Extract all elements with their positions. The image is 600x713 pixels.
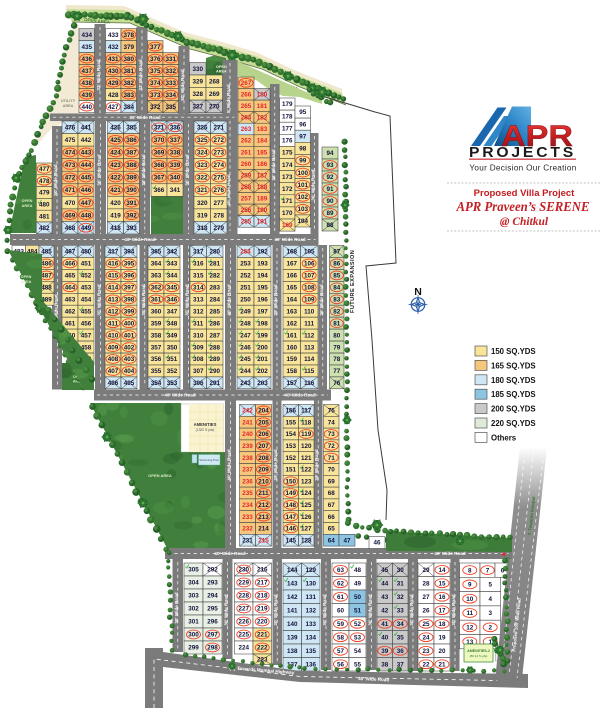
svg-text:478: 478	[39, 178, 50, 185]
svg-text:39' Wide Road: 39' Wide Road	[314, 449, 319, 480]
svg-text:412: 412	[108, 308, 119, 315]
svg-text:193: 193	[257, 261, 268, 268]
svg-text:202: 202	[257, 368, 268, 375]
svg-text:161: 161	[287, 332, 298, 339]
svg-text:384: 384	[124, 104, 135, 111]
svg-text:253: 253	[240, 261, 251, 268]
svg-text:352: 352	[167, 368, 178, 375]
svg-text:242: 242	[242, 408, 253, 415]
svg-text:77: 77	[333, 368, 341, 375]
svg-text:112: 112	[304, 332, 315, 339]
svg-text:424: 424	[110, 150, 121, 157]
svg-text:71: 71	[328, 455, 336, 462]
svg-text:99: 99	[299, 158, 307, 165]
svg-text:468: 468	[65, 225, 76, 232]
svg-text:336: 336	[170, 125, 181, 132]
svg-text:430: 430	[108, 68, 119, 75]
svg-text:210: 210	[258, 478, 269, 485]
svg-text:163: 163	[287, 308, 298, 315]
svg-text:189: 189	[257, 196, 268, 203]
svg-text:132: 132	[306, 608, 317, 615]
svg-text:443: 443	[81, 150, 92, 157]
svg-text:404: 404	[124, 368, 135, 375]
svg-text:25: 25	[422, 621, 430, 628]
svg-text:87: 87	[333, 249, 341, 256]
svg-text:371: 371	[154, 125, 165, 132]
svg-text:131: 131	[306, 594, 317, 601]
svg-text:366: 366	[154, 187, 165, 194]
svg-text:302: 302	[188, 606, 199, 613]
svg-text:369: 369	[154, 150, 165, 157]
svg-text:11: 11	[466, 610, 473, 617]
svg-text:239: 239	[242, 443, 253, 450]
svg-text:150: 150	[286, 478, 297, 485]
svg-text:39' Wide Road: 39' Wide Road	[273, 449, 278, 480]
svg-text:445: 445	[81, 175, 92, 182]
svg-text:194: 194	[257, 273, 268, 280]
svg-text:FUTURE EXPANSION: FUTURE EXPANSION	[350, 250, 356, 313]
svg-text:220: 220	[257, 619, 268, 626]
svg-text:36' Wide Road: 36' Wide Road	[271, 149, 276, 180]
svg-text:385: 385	[126, 125, 137, 132]
svg-text:217: 217	[257, 580, 268, 587]
svg-text:291: 291	[210, 380, 221, 387]
svg-text:356: 356	[151, 356, 162, 363]
svg-text:26: 26	[422, 608, 430, 615]
svg-text:81: 81	[333, 320, 341, 327]
svg-text:157: 157	[287, 380, 298, 387]
svg-text:30: 30	[397, 567, 405, 574]
svg-text:389: 389	[126, 175, 137, 182]
svg-text:429: 429	[108, 80, 119, 87]
svg-text:427: 427	[108, 104, 119, 111]
svg-text:393: 393	[126, 225, 137, 232]
svg-text:316: 316	[193, 261, 204, 268]
svg-text:143: 143	[287, 581, 298, 588]
svg-text:262: 262	[241, 138, 252, 145]
svg-text:44: 44	[381, 581, 389, 588]
svg-text:172: 172	[282, 186, 293, 193]
svg-text:27: 27	[422, 594, 430, 601]
svg-text:185 SQ.YDS: 185 SQ.YDS	[491, 390, 536, 399]
svg-text:36' Wide Road: 36' Wide Road	[319, 284, 324, 315]
svg-text:192: 192	[257, 249, 268, 256]
svg-text:399: 399	[124, 308, 135, 315]
svg-text:341: 341	[170, 187, 181, 194]
svg-text:195: 195	[257, 285, 268, 292]
svg-text:141: 141	[287, 608, 298, 615]
svg-text:413: 413	[108, 297, 119, 304]
svg-text:167: 167	[287, 261, 298, 268]
svg-text:285: 285	[210, 308, 221, 315]
svg-text:381: 381	[124, 68, 135, 75]
svg-text:30' Wide Road: 30' Wide Road	[409, 594, 414, 625]
svg-text:280: 280	[210, 249, 221, 256]
svg-text:255: 255	[241, 219, 252, 226]
svg-text:154: 154	[286, 431, 297, 438]
svg-text:380: 380	[124, 56, 135, 63]
svg-text:264: 264	[241, 115, 252, 122]
svg-text:321: 321	[197, 187, 208, 194]
svg-text:171: 171	[282, 198, 293, 205]
svg-text:(80.14 S.yds): (80.14 S.yds)	[470, 654, 488, 658]
svg-text:454: 454	[81, 297, 92, 304]
svg-text:477: 477	[39, 166, 50, 173]
svg-text:165: 165	[287, 285, 298, 292]
svg-text:204: 204	[258, 408, 269, 415]
svg-text:49: 49	[354, 581, 362, 588]
svg-text:40' Wide Road: 40' Wide Road	[227, 449, 232, 480]
svg-text:166: 166	[287, 273, 298, 280]
svg-text:444: 444	[81, 162, 92, 169]
svg-text:473: 473	[65, 162, 76, 169]
svg-text:16: 16	[438, 594, 446, 601]
svg-text:294: 294	[207, 593, 218, 600]
svg-text:50: 50	[354, 594, 362, 601]
svg-text:437: 437	[82, 68, 93, 75]
svg-text:24: 24	[422, 635, 430, 642]
svg-text:448: 448	[81, 212, 92, 219]
svg-text:309: 309	[193, 344, 204, 351]
svg-text:88: 88	[326, 222, 334, 229]
svg-text:296: 296	[207, 619, 218, 626]
svg-text:175: 175	[282, 150, 293, 157]
svg-text:206: 206	[258, 431, 269, 438]
svg-text:121: 121	[301, 455, 312, 462]
svg-text:240: 240	[242, 431, 253, 438]
svg-text:248: 248	[240, 320, 251, 327]
svg-text:415: 415	[108, 273, 119, 280]
svg-text:476: 476	[65, 125, 76, 132]
svg-text:400: 400	[124, 320, 135, 327]
svg-text:41: 41	[381, 621, 389, 628]
svg-text:220 SQ.YDS: 220 SQ.YDS	[491, 419, 536, 428]
svg-text:142: 142	[287, 594, 298, 601]
svg-text:208: 208	[258, 455, 269, 462]
svg-text:486: 486	[41, 261, 52, 268]
svg-text:39' Wide Road: 39' Wide Road	[273, 284, 278, 315]
svg-text:370: 370	[154, 137, 165, 144]
svg-text:481: 481	[39, 213, 50, 220]
svg-text:308: 308	[193, 356, 204, 363]
svg-text:91: 91	[326, 186, 334, 193]
svg-text:78: 78	[333, 356, 341, 363]
svg-text:387: 387	[126, 150, 137, 157]
svg-text:432: 432	[108, 44, 119, 51]
svg-text:423: 423	[110, 162, 121, 169]
svg-text:180 SQ.YDS: 180 SQ.YDS	[491, 376, 536, 385]
svg-text:372: 372	[150, 104, 161, 111]
svg-text:UTILITY: UTILITY	[61, 99, 76, 103]
svg-text:200: 200	[257, 344, 268, 351]
svg-text:236: 236	[242, 478, 253, 485]
svg-text:331: 331	[166, 56, 177, 63]
svg-text:337: 337	[170, 137, 181, 144]
svg-text:159: 159	[287, 356, 298, 363]
svg-text:230: 230	[239, 567, 250, 574]
svg-text:403: 403	[124, 356, 135, 363]
svg-text:35' Wide Road: 35' Wide Road	[185, 284, 190, 315]
svg-text:449: 449	[81, 225, 92, 232]
svg-text:50' Wide Road: 50' Wide Road	[180, 69, 185, 100]
svg-text:298: 298	[207, 645, 218, 652]
svg-text:306: 306	[193, 380, 204, 387]
svg-text:119: 119	[301, 431, 312, 438]
svg-text:246: 246	[240, 344, 251, 351]
svg-text:453: 453	[81, 285, 92, 292]
svg-text:127: 127	[301, 526, 312, 533]
svg-text:40: 40	[381, 635, 389, 642]
svg-text:410: 410	[108, 332, 119, 339]
svg-text:467: 467	[65, 249, 76, 256]
svg-text:469: 469	[65, 212, 76, 219]
svg-text:314: 314	[193, 285, 204, 292]
svg-text:293: 293	[207, 580, 218, 587]
svg-text:374: 374	[150, 80, 161, 87]
svg-text:29: 29	[422, 567, 430, 574]
svg-text:394: 394	[124, 249, 135, 256]
svg-text:46: 46	[373, 540, 381, 547]
svg-text:AREA: AREA	[63, 104, 74, 108]
svg-text:117: 117	[301, 408, 312, 415]
svg-text:33' Wide Road: 33' Wide Road	[129, 115, 160, 120]
svg-text:396: 396	[124, 273, 135, 280]
svg-text:272: 272	[214, 137, 225, 144]
svg-text:168: 168	[287, 249, 298, 256]
svg-text:OPEN: OPEN	[21, 275, 32, 279]
svg-text:30' Wide Road: 30' Wide Road	[451, 594, 456, 625]
svg-text:407: 407	[108, 368, 119, 375]
svg-text:APR Praveen’s SERENE: APR Praveen’s SERENE	[456, 200, 590, 215]
svg-text:383: 383	[124, 92, 135, 99]
svg-text:85: 85	[333, 273, 341, 280]
svg-text:51: 51	[354, 608, 362, 615]
svg-text:130: 130	[306, 581, 317, 588]
svg-text:140: 140	[287, 621, 298, 628]
svg-text:320: 320	[197, 200, 208, 207]
svg-text:315: 315	[193, 273, 204, 280]
svg-text:339: 339	[170, 162, 181, 169]
svg-text:270: 270	[209, 104, 220, 111]
svg-text:373: 373	[150, 92, 161, 99]
svg-text:AMENITIES-2: AMENITIES-2	[467, 649, 490, 653]
svg-text:104: 104	[298, 218, 309, 225]
svg-text:324: 324	[197, 150, 208, 157]
svg-text:65: 65	[328, 526, 336, 533]
svg-text:40' Wide Road: 40' Wide Road	[124, 237, 155, 242]
svg-text:15: 15	[438, 581, 446, 588]
svg-text:211: 211	[258, 490, 269, 497]
svg-text:276: 276	[214, 187, 225, 194]
svg-text:244: 244	[240, 368, 251, 375]
svg-text:323: 323	[197, 162, 208, 169]
svg-text:14: 14	[438, 567, 446, 574]
svg-text:36' Wide Road: 36' Wide Road	[368, 594, 373, 625]
svg-text:48: 48	[354, 567, 362, 574]
svg-text:397: 397	[124, 285, 135, 292]
svg-text:219: 219	[257, 606, 268, 613]
svg-text:438: 438	[82, 80, 93, 87]
svg-text:83: 83	[333, 297, 341, 304]
svg-text:123: 123	[301, 478, 312, 485]
svg-text:138: 138	[287, 648, 298, 655]
svg-text:229: 229	[239, 580, 250, 587]
svg-text:122: 122	[301, 467, 312, 474]
svg-text:375: 375	[150, 68, 161, 75]
svg-text:212: 212	[258, 502, 269, 509]
svg-text:20: 20	[438, 648, 446, 655]
svg-text:40' Wide Road: 40' Wide Road	[284, 393, 315, 398]
svg-text:38: 38	[381, 662, 389, 669]
svg-text:322: 322	[197, 175, 208, 182]
svg-text:425: 425	[110, 137, 121, 144]
svg-text:466: 466	[65, 261, 76, 268]
svg-text:36' Wide Road: 36' Wide Road	[97, 154, 102, 185]
svg-text:422: 422	[110, 175, 121, 182]
svg-text:402: 402	[124, 344, 135, 351]
svg-text:420: 420	[110, 200, 121, 207]
svg-text:129: 129	[306, 567, 317, 574]
svg-text:257: 257	[241, 196, 252, 203]
svg-text:350: 350	[167, 344, 178, 351]
svg-text:266: 266	[241, 92, 252, 99]
svg-text:47: 47	[343, 537, 351, 544]
svg-text:283: 283	[210, 285, 221, 292]
svg-text:388: 388	[126, 162, 137, 169]
svg-text:289: 289	[210, 356, 221, 363]
svg-text:173: 173	[282, 174, 293, 181]
svg-text:80: 80	[333, 332, 341, 339]
svg-text:335: 335	[166, 104, 177, 111]
svg-text:56: 56	[337, 662, 345, 669]
svg-text:2: 2	[488, 625, 492, 632]
svg-text:57: 57	[337, 648, 345, 655]
svg-text:338: 338	[170, 150, 181, 157]
svg-text:446: 446	[81, 187, 92, 194]
svg-text:290: 290	[210, 368, 221, 375]
svg-text:153: 153	[286, 443, 297, 450]
svg-text:465: 465	[65, 273, 76, 280]
svg-text:401: 401	[124, 332, 135, 339]
svg-text:282: 282	[210, 273, 221, 280]
svg-text:365: 365	[151, 249, 162, 256]
svg-text:60: 60	[337, 608, 345, 615]
svg-text:53: 53	[354, 635, 362, 642]
svg-text:252: 252	[240, 273, 251, 280]
svg-text:363: 363	[151, 273, 162, 280]
svg-text:AREA: AREA	[216, 70, 227, 74]
svg-text:19: 19	[438, 635, 446, 642]
svg-text:76: 76	[333, 380, 341, 387]
svg-text:184: 184	[257, 138, 268, 145]
svg-text:456: 456	[81, 320, 92, 327]
svg-text:334: 334	[166, 92, 177, 99]
svg-text:103: 103	[298, 206, 309, 213]
svg-text:463: 463	[65, 297, 76, 304]
svg-text:342: 342	[167, 249, 178, 256]
svg-text:224: 224	[239, 645, 250, 652]
svg-text:64: 64	[328, 537, 336, 544]
svg-text:284: 284	[210, 297, 221, 304]
svg-text:40' Wide Road: 40' Wide Road	[274, 237, 305, 242]
svg-text:281: 281	[210, 261, 221, 268]
svg-text:215: 215	[258, 537, 269, 544]
svg-text:40' Wide Road: 40' Wide Road	[214, 551, 245, 556]
svg-text:354: 354	[151, 380, 162, 387]
svg-text:160: 160	[287, 344, 298, 351]
svg-text:330: 330	[193, 66, 204, 73]
svg-text:359: 359	[151, 320, 162, 327]
svg-text:250: 250	[240, 297, 251, 304]
svg-text:451: 451	[81, 261, 92, 268]
svg-text:35' Wide Road: 35' Wide Road	[97, 284, 102, 315]
svg-text:299: 299	[188, 645, 199, 652]
svg-text:333: 333	[166, 80, 177, 87]
svg-text:3: 3	[488, 610, 492, 617]
svg-text:21: 21	[438, 662, 446, 669]
svg-text:198: 198	[257, 320, 268, 327]
svg-text:269: 269	[209, 91, 220, 98]
svg-text:118: 118	[301, 419, 312, 426]
svg-text:Proposed Villa Project: Proposed Villa Project	[474, 188, 576, 199]
svg-text:181: 181	[257, 103, 268, 110]
svg-text:303: 303	[188, 593, 199, 600]
svg-text:367: 367	[154, 175, 165, 182]
svg-text:32: 32	[397, 594, 405, 601]
svg-text:AREA: AREA	[21, 280, 32, 284]
svg-text:345: 345	[167, 285, 178, 292]
svg-text:133: 133	[306, 621, 317, 628]
svg-text:42: 42	[381, 608, 389, 615]
svg-text:52: 52	[354, 621, 362, 628]
svg-text:158: 158	[287, 368, 298, 375]
svg-text:115: 115	[304, 368, 315, 375]
svg-text:36' Wide Road: 36' Wide Road	[141, 154, 146, 185]
svg-text:66: 66	[328, 514, 336, 521]
svg-text:259: 259	[241, 172, 252, 179]
svg-text:233: 233	[242, 514, 253, 521]
svg-text:226: 226	[239, 619, 250, 626]
svg-text:238: 238	[242, 455, 253, 462]
svg-text:45' Wide Road: 45' Wide Road	[226, 84, 231, 115]
svg-text:61: 61	[337, 594, 345, 601]
svg-text:377: 377	[150, 44, 161, 51]
svg-text:440: 440	[82, 104, 93, 111]
svg-text:487: 487	[41, 273, 52, 280]
svg-text:353: 353	[167, 380, 178, 387]
svg-text:135: 135	[306, 648, 317, 655]
svg-text:482: 482	[39, 225, 50, 232]
svg-text:201: 201	[257, 356, 268, 363]
svg-text:162: 162	[287, 320, 298, 327]
svg-text:450: 450	[81, 249, 92, 256]
svg-text:485: 485	[41, 249, 52, 256]
svg-text:343: 343	[167, 261, 178, 268]
svg-text:101: 101	[298, 182, 309, 189]
svg-text:164: 164	[287, 297, 298, 304]
svg-text:292: 292	[207, 567, 218, 574]
svg-text:75: 75	[328, 408, 336, 415]
svg-text:174: 174	[282, 162, 293, 169]
svg-text:190: 190	[257, 207, 268, 214]
svg-text:433: 433	[108, 32, 119, 39]
svg-text:OPEN: OPEN	[216, 65, 227, 69]
svg-text:382: 382	[124, 80, 135, 87]
svg-text:245: 245	[240, 356, 251, 363]
svg-text:84: 84	[333, 285, 341, 292]
svg-text:263: 263	[241, 126, 252, 133]
svg-text:241: 241	[242, 419, 253, 426]
